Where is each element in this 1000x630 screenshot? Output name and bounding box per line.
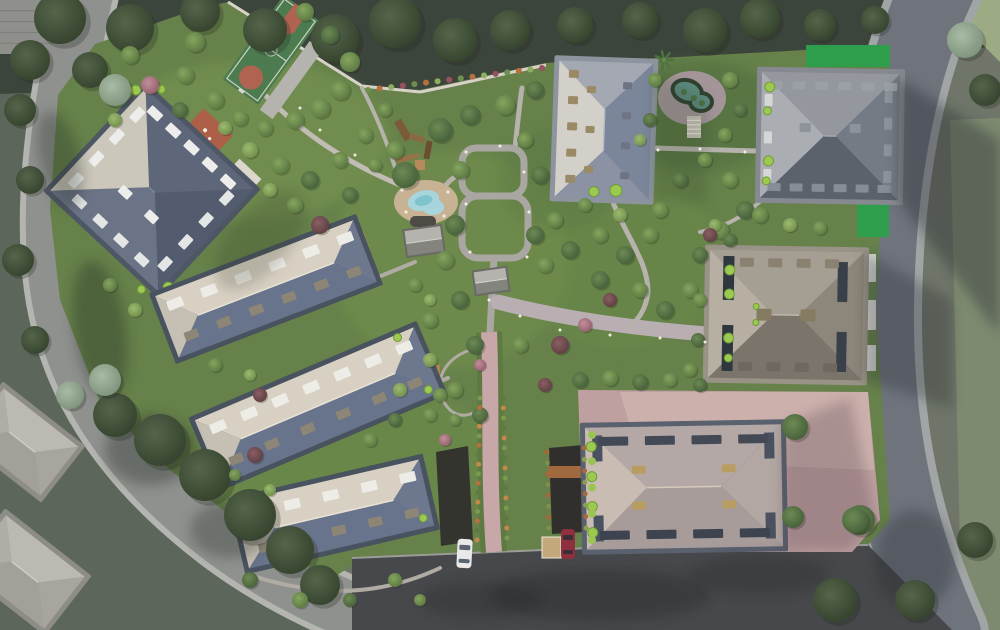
white-car (456, 539, 472, 569)
skylight (623, 82, 632, 89)
deck-furniture (442, 214, 445, 217)
tree (602, 370, 618, 386)
tree (591, 271, 609, 289)
tree (332, 152, 348, 168)
skylight (693, 529, 723, 539)
shrub (582, 480, 587, 485)
shrub (476, 481, 481, 486)
shrub (584, 526, 589, 531)
tree (813, 578, 857, 622)
tree (242, 572, 258, 588)
roof-bush (765, 82, 775, 92)
tree (616, 246, 634, 264)
shrub (400, 83, 406, 89)
shrub (504, 506, 509, 511)
shrub (501, 396, 506, 401)
tree (531, 166, 549, 184)
roof-bush (763, 107, 771, 115)
tree (578, 318, 592, 332)
shrub (545, 460, 550, 465)
path-light (488, 299, 491, 302)
roof-bush (763, 156, 773, 166)
path-light (657, 149, 660, 152)
tree (244, 369, 256, 381)
roof-recess (722, 325, 734, 371)
tree (861, 6, 889, 34)
shrub (477, 443, 482, 448)
skylight (585, 126, 594, 133)
tree-shadow (690, 555, 830, 595)
tree (134, 414, 186, 466)
tree (957, 522, 993, 558)
path-light (744, 151, 747, 154)
tree (271, 156, 289, 174)
shrub (476, 462, 481, 467)
tree (423, 353, 437, 367)
tree (547, 212, 563, 228)
skylight (884, 144, 892, 156)
tree (340, 52, 360, 72)
rear-window (563, 550, 573, 554)
tree (378, 103, 392, 117)
path-light (699, 148, 702, 151)
roof-bush (725, 265, 735, 275)
skylight (815, 82, 828, 90)
tree (632, 374, 648, 390)
skylight (795, 363, 809, 372)
tree (495, 95, 515, 115)
tree (460, 105, 480, 125)
roof-recess (837, 262, 848, 302)
tree (229, 469, 241, 481)
shrub (582, 457, 587, 462)
tree (643, 113, 657, 127)
path-light (659, 337, 662, 340)
tree (301, 171, 319, 189)
site-plan-canvas (0, 0, 1000, 630)
shrub (503, 476, 508, 481)
tree (652, 202, 668, 218)
tree (474, 359, 486, 371)
bright-lawn (806, 45, 890, 67)
tree (176, 66, 194, 84)
tree (561, 241, 579, 259)
skylight (598, 436, 628, 446)
tree (613, 208, 627, 222)
skylight (620, 172, 629, 179)
tree (538, 378, 552, 392)
roof-bush (724, 333, 734, 343)
tree (357, 127, 373, 143)
skylight (825, 259, 839, 268)
tree (572, 372, 588, 388)
skylight (587, 86, 596, 93)
tree (557, 7, 593, 43)
tree (752, 207, 768, 223)
shrub (476, 490, 481, 495)
shrub (469, 74, 475, 80)
path-light (609, 334, 612, 337)
shrub (475, 500, 480, 505)
path-light (465, 151, 468, 154)
skylight (567, 122, 577, 130)
tree (439, 434, 451, 446)
tree (408, 278, 422, 292)
path-light (499, 145, 502, 148)
path-light (354, 154, 357, 157)
tree (692, 247, 708, 263)
skylight (764, 131, 772, 143)
tree (783, 218, 797, 232)
shrub (477, 405, 482, 410)
skylight (740, 258, 754, 267)
skylight (765, 94, 773, 106)
tree (423, 408, 437, 422)
tree (172, 102, 188, 118)
path-light (465, 203, 468, 206)
tree (466, 336, 484, 354)
garden-pavilion-2 (471, 266, 510, 297)
building-bottom-right (580, 419, 788, 555)
shrub (476, 452, 481, 457)
shrub (476, 471, 481, 476)
shrub (546, 515, 551, 520)
roof-bush (753, 303, 759, 309)
shrub (588, 484, 596, 492)
tree (388, 413, 402, 427)
tree (782, 414, 808, 440)
roof-bush (724, 354, 732, 362)
skylight (691, 435, 721, 445)
tree (388, 573, 402, 587)
tree (578, 198, 592, 212)
shrub (365, 87, 371, 93)
tree (537, 257, 553, 273)
tree (804, 9, 836, 41)
tree (895, 580, 935, 620)
rear-window (459, 559, 470, 564)
tree (296, 3, 314, 21)
car-body (561, 529, 575, 559)
tree (99, 74, 131, 106)
shrub (545, 450, 550, 455)
path-light (519, 315, 522, 318)
skylight (838, 82, 851, 90)
tree (722, 172, 738, 188)
shrub (502, 446, 507, 451)
shrub (546, 504, 551, 509)
skylight (566, 148, 576, 156)
tree (526, 81, 544, 99)
tree (698, 153, 712, 167)
tree (232, 110, 248, 126)
skylight (738, 362, 752, 371)
tree-shadow (420, 582, 540, 618)
shrub (501, 426, 506, 431)
tree (106, 4, 154, 52)
shrub (582, 446, 587, 451)
shrub (503, 486, 508, 491)
tree (663, 373, 677, 387)
skylight (740, 528, 770, 538)
skylight (790, 183, 803, 191)
red-car (561, 529, 575, 559)
tree (422, 312, 438, 328)
shrub (458, 75, 464, 81)
tree (4, 94, 36, 126)
path-light (528, 211, 531, 214)
tree (969, 74, 1000, 106)
shrub (502, 436, 507, 441)
path-light (704, 341, 707, 344)
skylight (885, 91, 893, 103)
shrub (504, 69, 510, 75)
tree (782, 506, 804, 528)
tree (89, 364, 121, 396)
tree (642, 227, 658, 243)
tree (310, 98, 330, 118)
tree (672, 172, 688, 188)
tree (551, 336, 569, 354)
skylight (768, 258, 782, 267)
shrub (493, 71, 499, 77)
tree (392, 162, 418, 188)
shrub (377, 86, 383, 92)
tree (693, 378, 707, 392)
path-light (319, 129, 322, 132)
shrub (582, 468, 587, 473)
skylight (645, 436, 675, 446)
skylight (792, 81, 805, 89)
shrub (477, 424, 482, 429)
tree (947, 22, 983, 58)
tree (703, 228, 717, 242)
roof-bush (762, 177, 770, 185)
ramp-bridge (548, 466, 586, 478)
tree (490, 10, 530, 50)
tree (436, 251, 454, 269)
tree (286, 111, 304, 129)
tree (128, 303, 142, 317)
building-right-middle (703, 245, 869, 386)
shrub (502, 456, 507, 461)
skylight (766, 362, 780, 371)
tree (656, 301, 674, 319)
shrub (588, 457, 596, 465)
shrub (504, 526, 509, 531)
tree (243, 8, 287, 52)
tree (253, 388, 267, 402)
tree (56, 381, 84, 409)
roof-bush (586, 442, 596, 452)
shrub (588, 536, 596, 544)
tree (451, 161, 469, 179)
tree (242, 142, 258, 158)
roof-bush (587, 472, 597, 482)
tree (723, 233, 737, 247)
deck-furniture (446, 190, 449, 193)
tree (185, 32, 205, 52)
tree (343, 593, 357, 607)
shrub (411, 81, 417, 87)
skylight (796, 259, 810, 268)
shrub (545, 482, 550, 487)
tree (263, 183, 277, 197)
skylight (800, 123, 811, 132)
tree (16, 166, 44, 194)
tree (433, 18, 477, 62)
tree (813, 221, 827, 235)
entrance-kiosk (542, 537, 561, 558)
shrub (516, 68, 522, 74)
skylight (884, 118, 892, 130)
path-light (526, 256, 529, 259)
skylight (768, 183, 781, 191)
car-body (456, 539, 472, 569)
path-light (469, 251, 472, 254)
tree (264, 484, 276, 496)
skylight (568, 96, 578, 104)
tree (368, 158, 382, 172)
tree (445, 215, 465, 235)
shrub (503, 466, 508, 471)
skylight (856, 184, 869, 192)
shrub (583, 491, 588, 496)
skylight (569, 70, 579, 78)
shrub (588, 510, 596, 518)
shrub (505, 536, 510, 541)
shrub (477, 433, 482, 438)
tree (342, 187, 358, 203)
shrub (545, 471, 550, 476)
tree (428, 118, 452, 142)
skylight (622, 112, 631, 119)
shrub (501, 406, 506, 411)
tree (648, 73, 662, 87)
skylight (621, 142, 630, 149)
tree (512, 337, 528, 353)
tree (424, 294, 436, 306)
path-light (559, 329, 562, 332)
garden-pavilion-1 (402, 224, 446, 258)
tree (321, 26, 339, 44)
skylight (565, 175, 575, 183)
skylight (600, 530, 630, 540)
tree (363, 433, 377, 447)
tree (691, 333, 705, 347)
tree (693, 293, 707, 307)
tree (247, 447, 263, 463)
skylight (722, 500, 736, 508)
entry-walkway (489, 332, 494, 552)
skylight (823, 363, 837, 372)
skylight (884, 83, 897, 91)
tree (592, 227, 608, 243)
tree (683, 363, 697, 377)
roof-bush (724, 289, 734, 299)
shrub (539, 65, 545, 71)
tree (603, 293, 617, 307)
shrub (475, 509, 480, 514)
tree (179, 449, 231, 501)
tree (632, 282, 648, 298)
tree (224, 489, 276, 541)
path-light (523, 171, 526, 174)
tree (718, 128, 732, 142)
windshield (563, 535, 573, 540)
tree (526, 226, 544, 244)
shrub (547, 526, 552, 531)
shrub (477, 414, 482, 419)
deck-furniture (404, 210, 407, 213)
skylight (834, 184, 847, 192)
tree (141, 76, 159, 94)
tree (451, 291, 469, 309)
shrub (481, 72, 487, 78)
building-top-center (549, 55, 658, 205)
shrub (503, 496, 508, 501)
tree (736, 201, 754, 219)
roof-bush (589, 187, 599, 197)
tree (733, 103, 747, 117)
shrub (423, 80, 429, 86)
roof-bush (753, 319, 759, 325)
shrub (527, 66, 533, 72)
skylight (738, 434, 768, 444)
shrub (435, 78, 441, 84)
tree (292, 592, 308, 608)
shrub (588, 431, 596, 439)
tree (433, 388, 447, 402)
building-top-right (755, 67, 905, 206)
shrub (546, 493, 551, 498)
tree (218, 121, 232, 135)
tree (683, 8, 727, 52)
shrub (475, 538, 480, 543)
roof-recess (836, 332, 847, 372)
garage-ramp (436, 446, 473, 546)
roof-bush (610, 184, 622, 196)
shrub (478, 396, 483, 401)
tree (622, 2, 658, 38)
tree (93, 393, 137, 437)
tree (330, 80, 350, 100)
tree (447, 382, 463, 398)
skylight (756, 308, 771, 320)
tree (121, 46, 139, 64)
aerial-site-plan-render (0, 0, 1000, 630)
tree (634, 134, 646, 146)
tree (206, 91, 224, 109)
shrub (583, 514, 588, 519)
tree (2, 244, 34, 276)
shrub (504, 516, 509, 521)
shrub (388, 84, 394, 90)
tree (386, 141, 404, 159)
tree (842, 507, 868, 533)
tree (208, 358, 222, 372)
shrub (475, 528, 480, 533)
tree (103, 278, 117, 292)
skylight (584, 166, 593, 173)
tree (257, 120, 273, 136)
tree (722, 72, 738, 88)
skylight (883, 171, 891, 183)
path-light (299, 107, 302, 110)
tree (21, 326, 49, 354)
skylight (878, 185, 891, 193)
skylight (812, 184, 825, 192)
